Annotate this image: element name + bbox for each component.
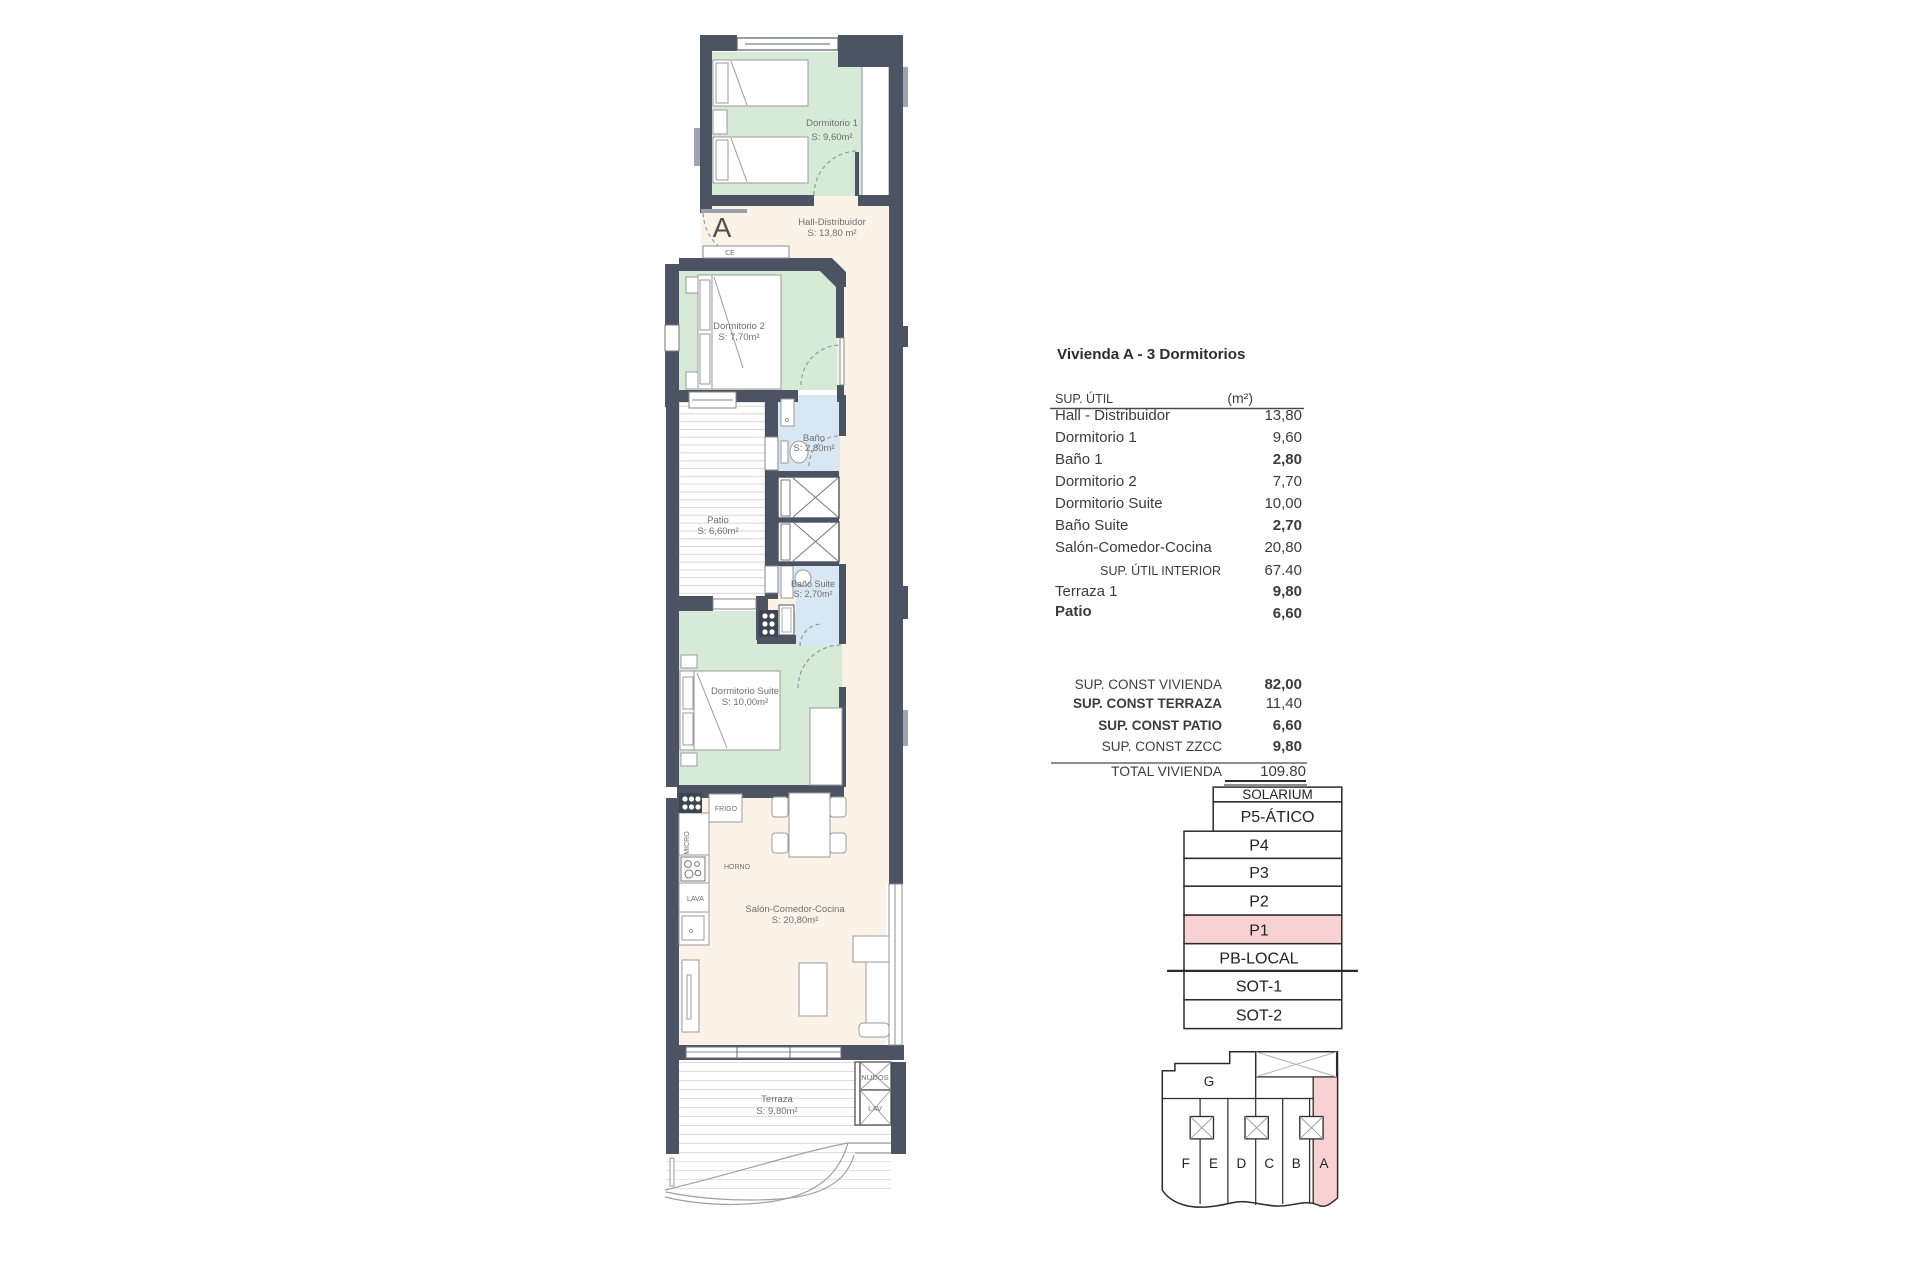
svg-text:9,80: 9,80 [1273, 583, 1302, 600]
svg-text:11,40: 11,40 [1266, 695, 1302, 712]
svg-text:Terraza 1: Terraza 1 [1055, 583, 1118, 600]
svg-text:P2: P2 [1249, 894, 1269, 911]
svg-text:Vivienda A - 3 Dormitorios: Vivienda A - 3 Dormitorios [1057, 346, 1245, 363]
svg-text:82,00: 82,00 [1264, 676, 1302, 693]
svg-text:S: 6,60m²: S: 6,60m² [697, 526, 738, 537]
svg-text:Dormitorio Suite: Dormitorio Suite [1055, 495, 1163, 512]
svg-text:CE: CE [725, 250, 735, 257]
svg-text:S: 9,60m²: S: 9,60m² [811, 132, 852, 143]
svg-text:13,80: 13,80 [1264, 407, 1302, 424]
svg-text:6,60: 6,60 [1273, 717, 1302, 734]
svg-text:109.80: 109.80 [1260, 763, 1306, 780]
svg-text:D: D [1237, 1156, 1247, 1171]
svg-text:S: 2,70m²: S: 2,70m² [793, 589, 832, 599]
svg-text:SUP. CONST TERRAZA: SUP. CONST TERRAZA [1073, 696, 1222, 711]
svg-text:P4: P4 [1249, 838, 1269, 855]
svg-text:Dormitorio 2: Dormitorio 2 [1055, 473, 1137, 490]
svg-text:Dormitorio 1: Dormitorio 1 [806, 118, 858, 129]
svg-text:SUP. CONST PATIO: SUP. CONST PATIO [1098, 718, 1222, 733]
svg-text:SUP. ÚTIL INTERIOR: SUP. ÚTIL INTERIOR [1100, 563, 1221, 578]
svg-text:10,00: 10,00 [1264, 495, 1302, 512]
svg-text:A: A [713, 212, 732, 243]
svg-text:Hall-Distribuidor: Hall-Distribuidor [798, 217, 866, 228]
svg-text:S: 9,80m²: S: 9,80m² [756, 1106, 797, 1117]
svg-text:C: C [1264, 1156, 1274, 1171]
svg-text:PB-LOCAL: PB-LOCAL [1219, 951, 1298, 968]
svg-text:Patio: Patio [707, 515, 729, 526]
svg-text:LAVA: LAVA [687, 896, 704, 903]
svg-text:67.40: 67.40 [1264, 562, 1302, 579]
svg-text:2,80: 2,80 [1273, 451, 1302, 468]
svg-text:Hall - Distribuidor: Hall - Distribuidor [1055, 407, 1170, 424]
svg-text:MICRO: MICRO [684, 831, 691, 855]
svg-text:Dormitorio 2: Dormitorio 2 [713, 321, 765, 332]
svg-text:G: G [1204, 1074, 1215, 1089]
svg-text:Terraza: Terraza [761, 1094, 793, 1105]
svg-text:SUP. ÚTIL: SUP. ÚTIL [1055, 391, 1113, 406]
svg-text:S: 2,80m²: S: 2,80m² [793, 443, 834, 454]
svg-text:SOT-1: SOT-1 [1236, 979, 1282, 996]
svg-text:P3: P3 [1249, 865, 1269, 882]
svg-text:P5-ÁTICO: P5-ÁTICO [1241, 807, 1315, 826]
svg-text:SOLARIUM: SOLARIUM [1242, 787, 1313, 802]
svg-text:TOTAL VIVIENDA: TOTAL VIVIENDA [1111, 764, 1223, 779]
svg-text:2,70: 2,70 [1273, 517, 1302, 534]
svg-text:9,60: 9,60 [1273, 429, 1302, 446]
svg-text:NUDOS: NUDOS [861, 1073, 888, 1082]
svg-text:FRIGO: FRIGO [715, 806, 738, 813]
svg-text:A: A [1319, 1156, 1328, 1171]
svg-text:Baño 1: Baño 1 [1055, 451, 1103, 468]
svg-text:S: 20,80m²: S: 20,80m² [772, 915, 818, 926]
svg-text:S: 10,00m²: S: 10,00m² [722, 697, 768, 708]
svg-text:Salón-Comedor-Cocina: Salón-Comedor-Cocina [1055, 539, 1212, 556]
svg-text:9,80: 9,80 [1273, 738, 1302, 755]
svg-text:LAV: LAV [868, 1104, 883, 1113]
svg-text:SOT-2: SOT-2 [1236, 1008, 1282, 1025]
svg-text:20,80: 20,80 [1264, 539, 1302, 556]
svg-text:Baño Suite: Baño Suite [791, 579, 835, 589]
svg-text:F: F [1182, 1156, 1190, 1171]
svg-text:S: 13,80 m²: S: 13,80 m² [807, 228, 856, 239]
svg-text:(m²): (m²) [1227, 390, 1253, 406]
svg-text:B: B [1292, 1156, 1301, 1171]
svg-text:SUP. CONST VIVIENDA: SUP. CONST VIVIENDA [1075, 677, 1222, 692]
svg-text:P1: P1 [1249, 923, 1269, 940]
svg-text:Baño Suite: Baño Suite [1055, 517, 1128, 534]
svg-text:6,60: 6,60 [1273, 605, 1302, 622]
svg-text:Patio: Patio [1055, 603, 1092, 620]
svg-text:E: E [1209, 1156, 1218, 1171]
svg-text:S: 7,70m²: S: 7,70m² [718, 332, 759, 343]
svg-text:7,70: 7,70 [1273, 473, 1302, 490]
svg-text:Salón-Comedor-Cocina: Salón-Comedor-Cocina [745, 904, 845, 915]
svg-text:Dormitorio Suite: Dormitorio Suite [711, 686, 779, 697]
svg-text:HORNO: HORNO [724, 864, 751, 871]
svg-text:Dormitorio 1: Dormitorio 1 [1055, 429, 1137, 446]
svg-text:SUP. CONST ZZCC: SUP. CONST ZZCC [1102, 739, 1223, 754]
